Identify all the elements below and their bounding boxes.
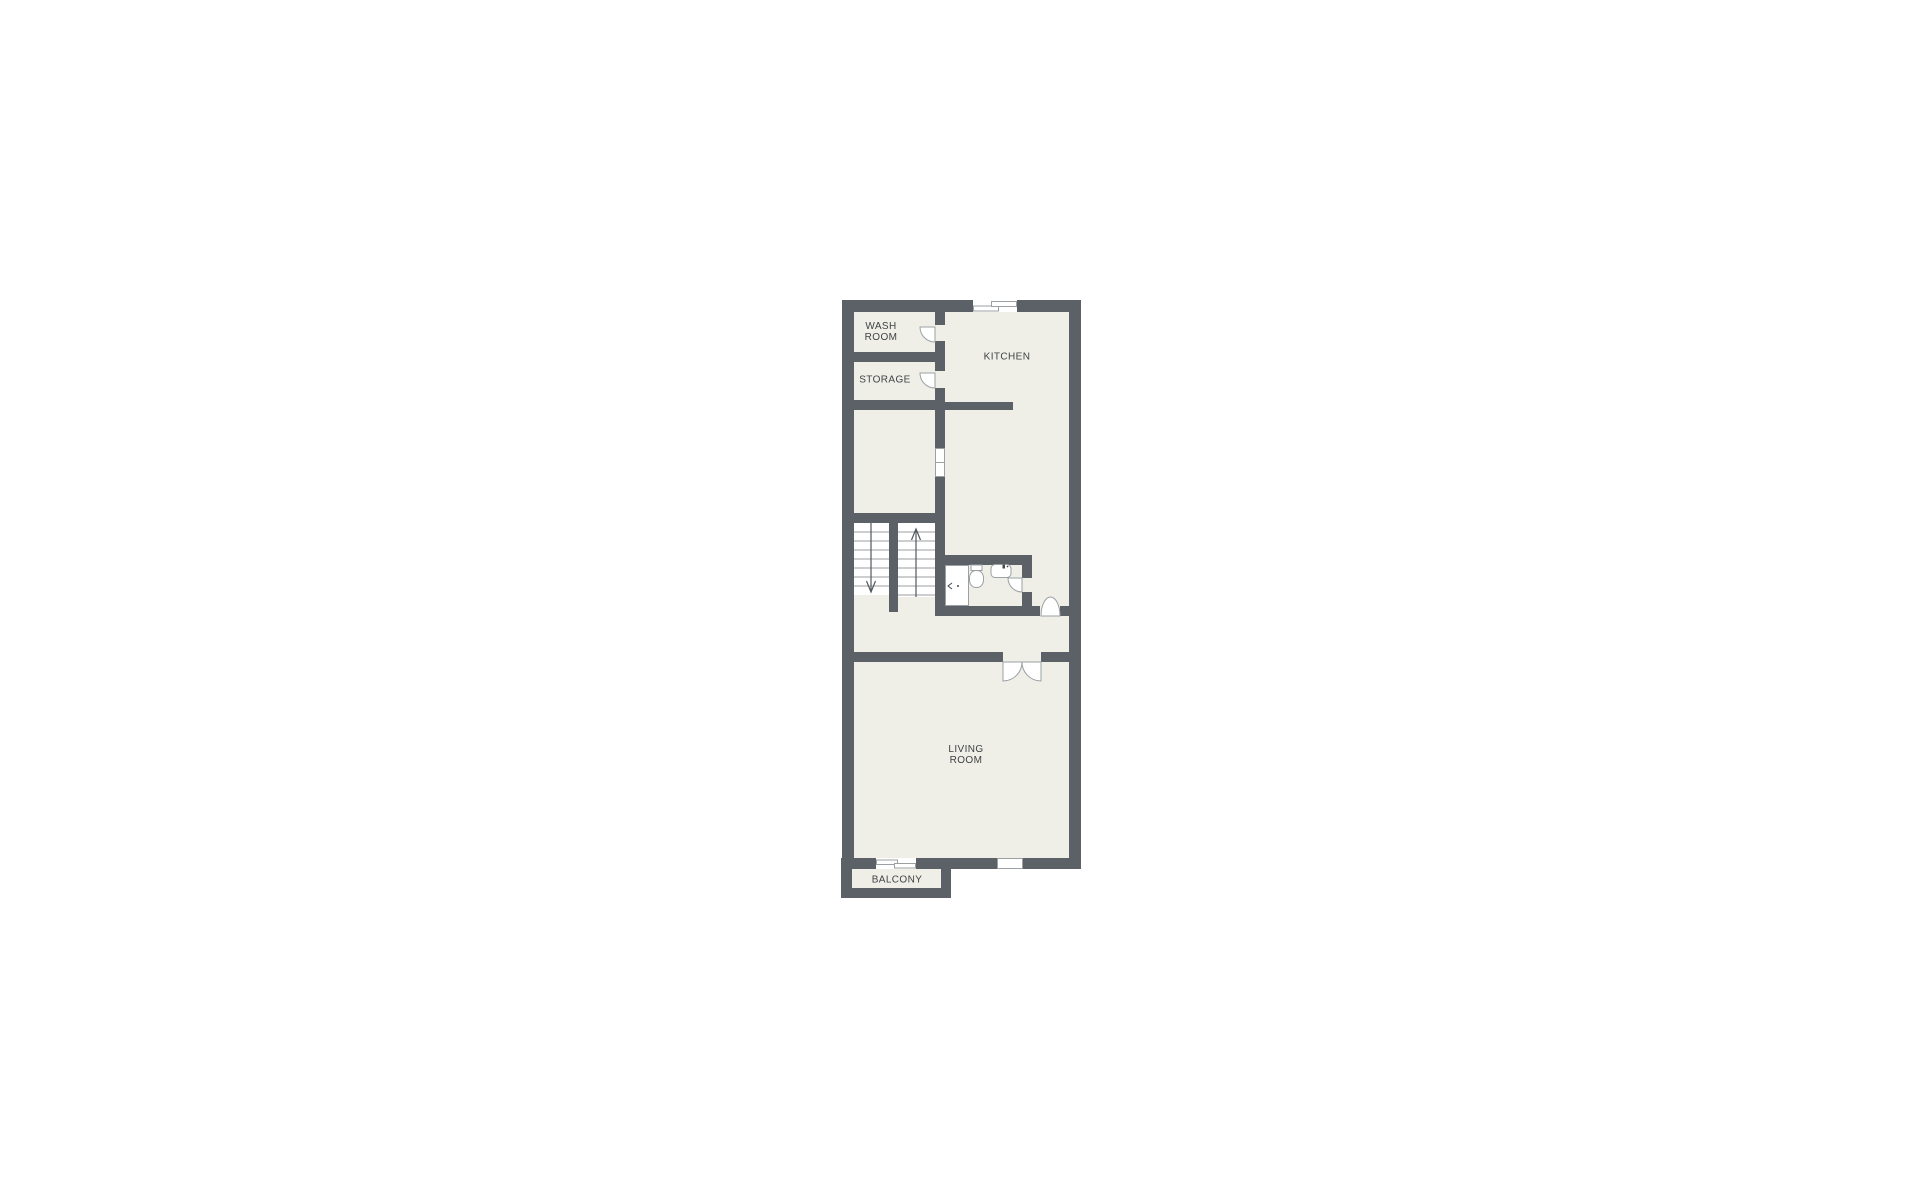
- wall-living-north-east: [1041, 652, 1069, 662]
- room-label-storage: STORAGE: [859, 375, 911, 386]
- window-interior-room: [935, 448, 945, 477]
- wall-living-north-west: [842, 652, 1003, 662]
- room-label-living-room-line1: LIVING: [948, 744, 983, 755]
- room-label-washroom: WASH ROOM: [865, 321, 898, 343]
- wall-kitchen-counter-stub: [945, 402, 1013, 410]
- window-living-room: [997, 858, 1023, 869]
- sliding-door-kitchen: [973, 300, 1017, 312]
- wall-interior-vertical-3: [935, 388, 945, 448]
- wall-stair-center: [889, 517, 898, 612]
- room-label-washroom-line2: ROOM: [865, 332, 898, 343]
- toilet-icon: [970, 565, 984, 588]
- sink-icon: [991, 565, 1011, 578]
- wall-west: [842, 300, 854, 869]
- wall-storage-south: [842, 400, 945, 410]
- wall-bathroom-north: [935, 555, 1032, 565]
- room-label-living-room-line2: ROOM: [948, 755, 983, 766]
- floor-plan: WASH ROOM STORAGE KITCHEN LIVING ROOM BA…: [841, 300, 1082, 903]
- wall-balcony-east: [941, 869, 951, 898]
- wall-balcony-south: [841, 888, 951, 898]
- room-label-balcony: BALCONY: [872, 875, 923, 886]
- shower-icon: [946, 566, 969, 606]
- wall-bathroom-east-upper: [1022, 565, 1032, 578]
- room-label-washroom-line1: WASH: [865, 321, 898, 332]
- wall-north: [842, 300, 1081, 312]
- wall-interior-vertical-4: [935, 477, 945, 616]
- sliding-door-balcony: [876, 858, 916, 869]
- room-label-kitchen: KITCHEN: [984, 352, 1031, 363]
- wall-east: [1069, 300, 1081, 869]
- room-label-storage-line1: STORAGE: [859, 375, 911, 386]
- room-label-living-room: LIVING ROOM: [948, 744, 983, 766]
- wall-hall-south-east: [1060, 606, 1069, 616]
- wall-bathroom-south: [935, 606, 1040, 616]
- wall-interior-vertical-1: [935, 312, 945, 325]
- wall-interior-vertical-2: [935, 341, 945, 371]
- room-label-balcony-line1: BALCONY: [872, 875, 923, 886]
- wall-washroom-south: [842, 352, 945, 362]
- floor-plan-canvas: [841, 300, 1082, 903]
- room-label-kitchen-line1: KITCHEN: [984, 352, 1031, 363]
